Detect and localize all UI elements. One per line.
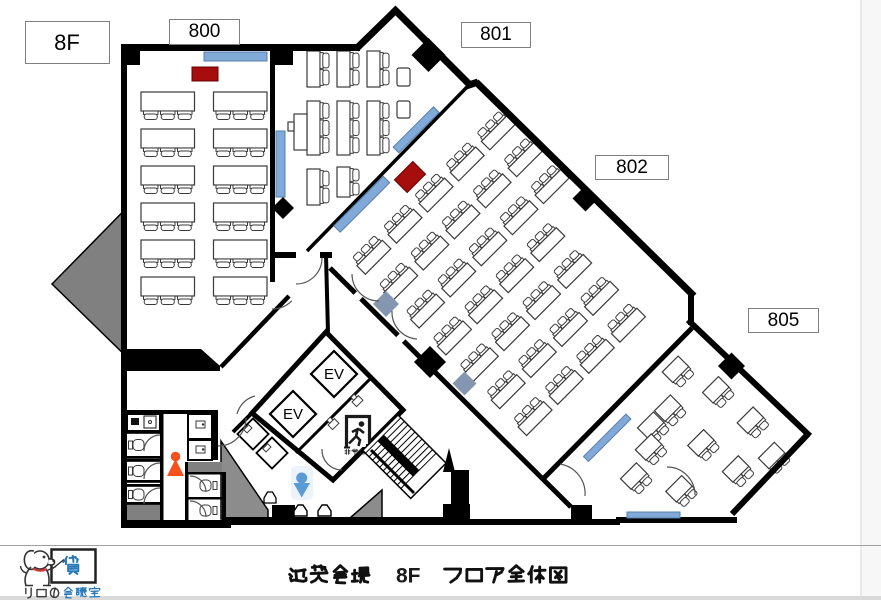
svg-text:EV: EV: [324, 366, 344, 383]
svg-text:8F: 8F: [396, 565, 421, 588]
svg-text:EV: EV: [283, 406, 303, 423]
